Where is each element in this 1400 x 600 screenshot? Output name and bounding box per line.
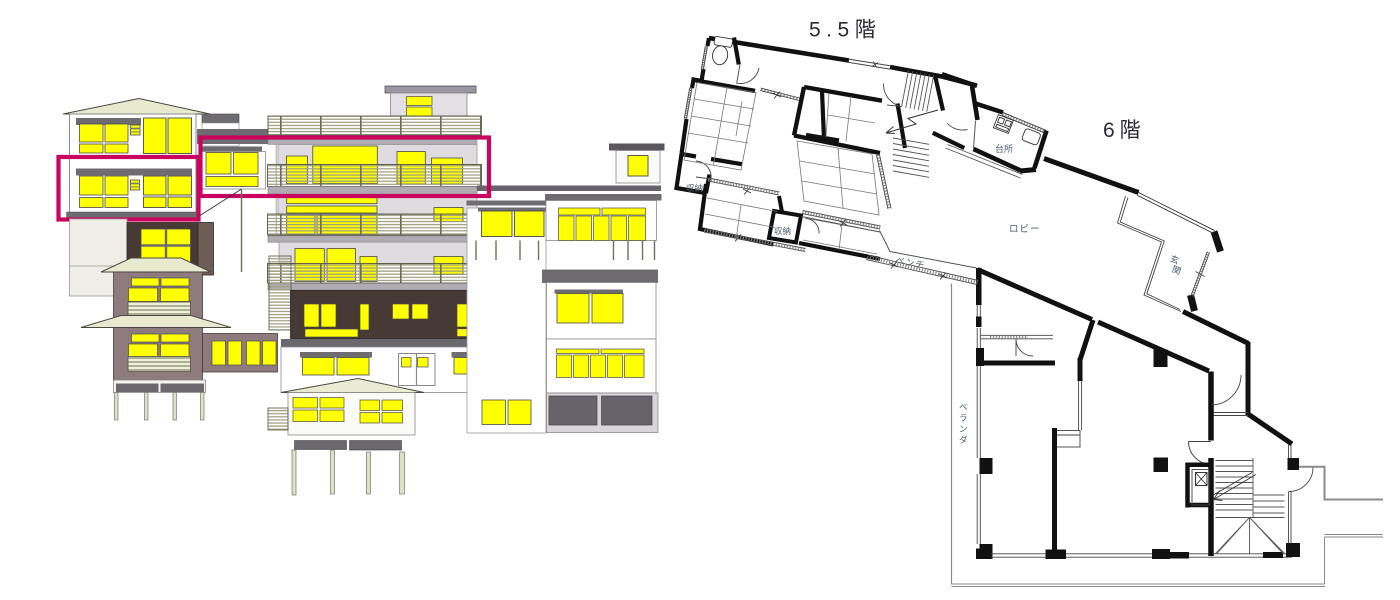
svg-text:ダ: ダ [959, 435, 968, 445]
svg-text:ロビー: ロビー [1009, 224, 1041, 235]
svg-text:5.5階: 5.5階 [809, 19, 881, 42]
svg-text:ベ: ベ [959, 402, 968, 412]
svg-text:台所: 台所 [995, 143, 1013, 154]
svg-text:6階: 6階 [1103, 119, 1146, 142]
svg-text:ン: ン [959, 424, 968, 434]
svg-text:収納: 収納 [686, 183, 703, 193]
svg-text:収納: 収納 [774, 226, 791, 236]
svg-text:ラ: ラ [959, 413, 968, 423]
